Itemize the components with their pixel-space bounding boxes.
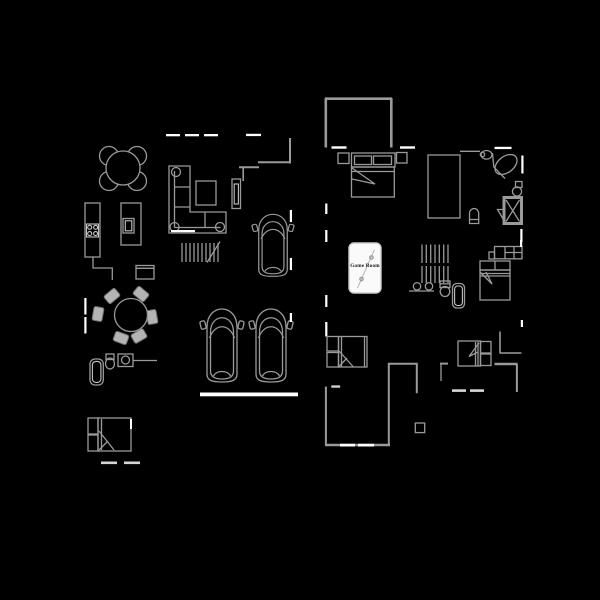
floor-plan: Game Room <box>0 0 600 600</box>
window-dash <box>340 444 355 447</box>
wall-tick <box>521 156 523 174</box>
window-dash <box>185 134 199 136</box>
window-dash <box>332 146 347 148</box>
window-dash <box>358 444 374 447</box>
window-dash <box>452 389 466 392</box>
wall-tick <box>521 320 523 327</box>
pool-table: Game Room <box>349 243 381 293</box>
wall-tick <box>520 240 522 247</box>
window-dash <box>331 385 340 387</box>
floor-plan-canvas: Game Room <box>0 0 600 600</box>
window-dash <box>204 134 218 136</box>
dining-table <box>115 299 148 332</box>
window-dash <box>246 134 261 136</box>
window-dash <box>495 147 512 149</box>
game-room-label: Game Room <box>350 263 380 269</box>
garage-door <box>200 393 298 397</box>
dining-chair <box>92 306 104 322</box>
window-dash <box>470 389 484 392</box>
window-dash <box>400 146 415 148</box>
window-dash <box>166 134 180 136</box>
